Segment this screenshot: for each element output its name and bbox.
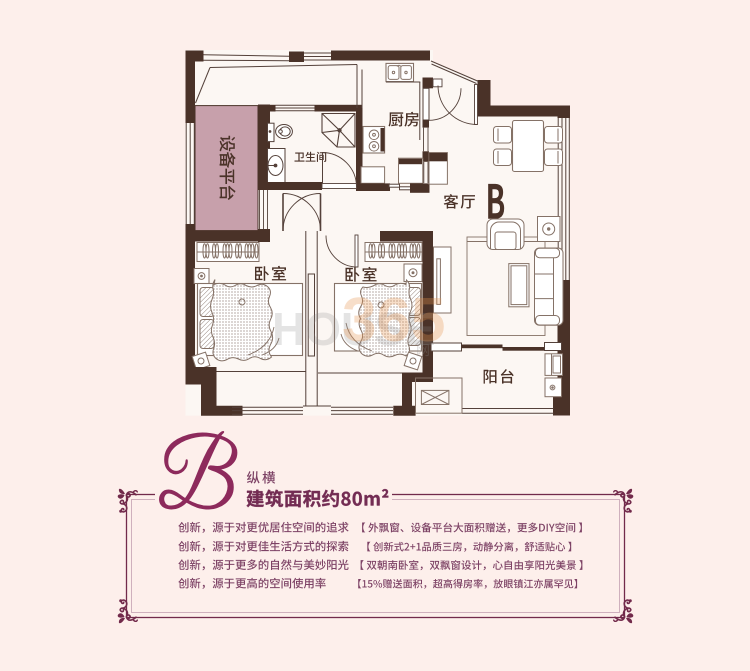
svg-text:365: 365 xyxy=(342,286,445,355)
